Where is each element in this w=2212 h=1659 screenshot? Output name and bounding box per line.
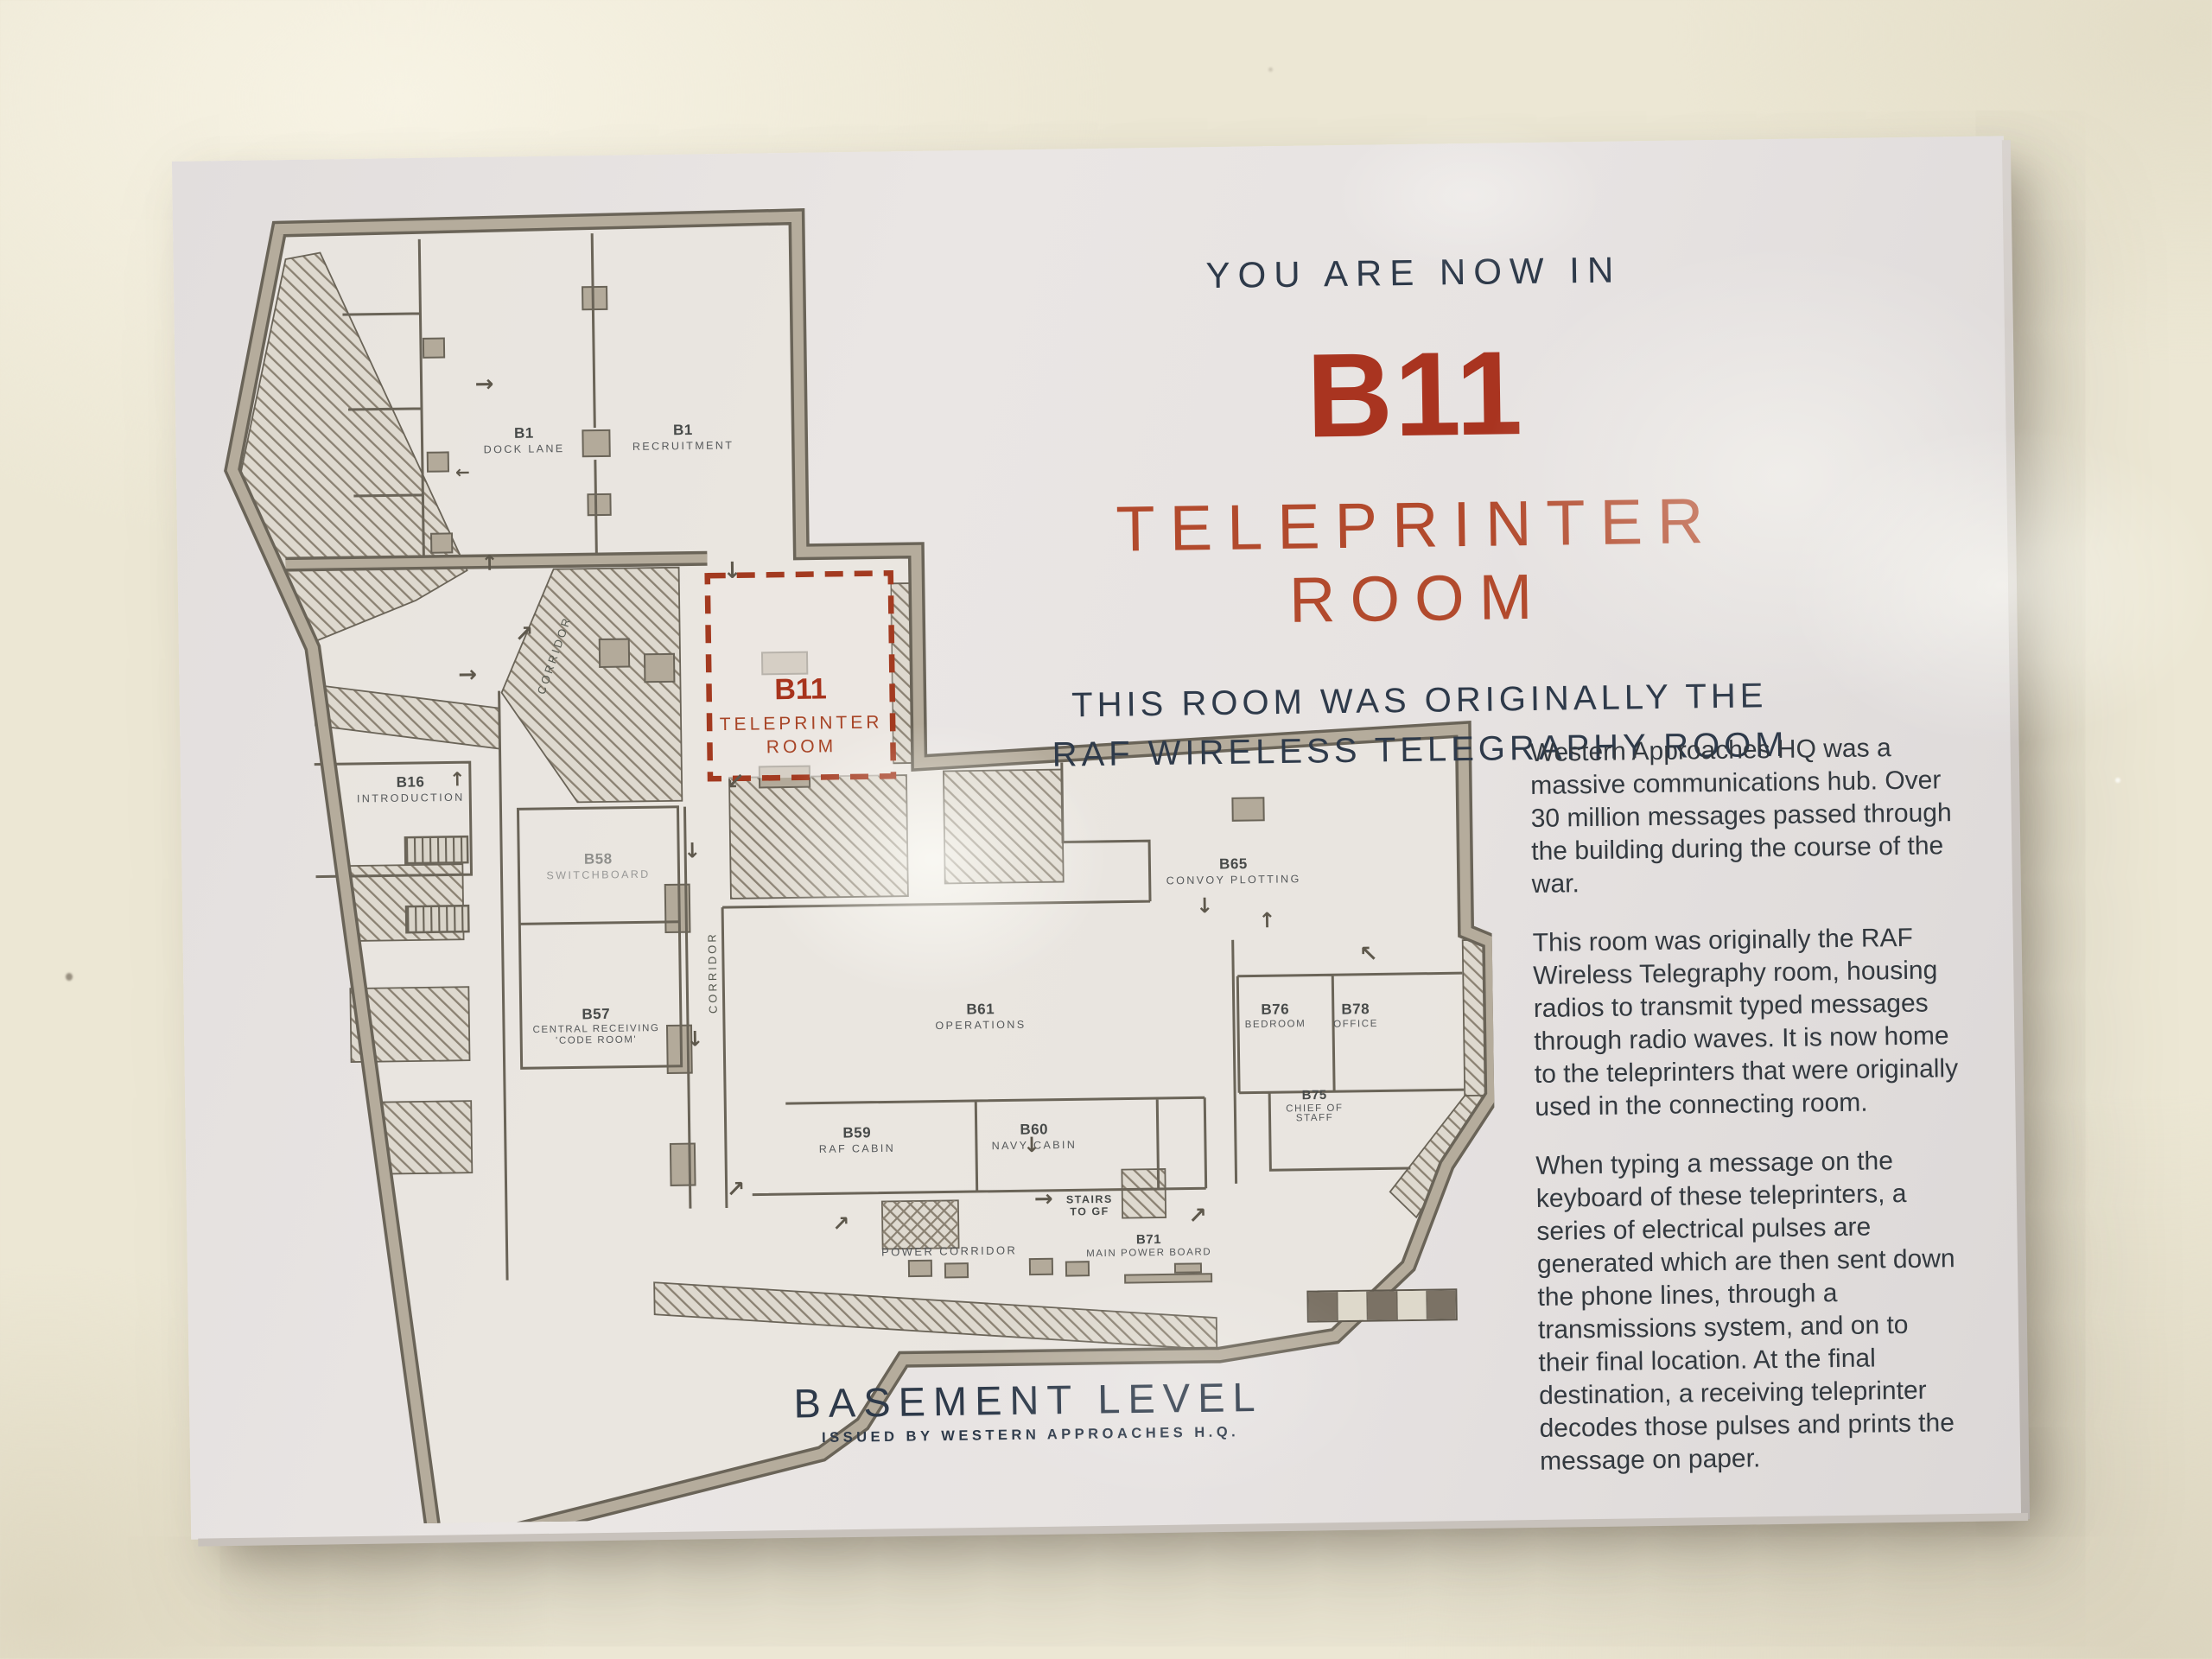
room-name: ROOM bbox=[709, 734, 893, 760]
door-arrow-icon: ↑ bbox=[449, 769, 466, 791]
door-arrow-icon: → bbox=[474, 372, 493, 397]
door-arrow-icon: ↗ bbox=[832, 1211, 849, 1236]
plan-title: BASEMENT LEVEL bbox=[793, 1373, 1263, 1427]
door-arrow-icon: ↗ bbox=[1188, 1203, 1207, 1229]
wall-speck bbox=[2115, 778, 2120, 783]
body-copy: Western Approaches HQ was a massive comm… bbox=[1529, 731, 1965, 1504]
floor-plan: B1 DOCK LANE B1 RECRUITMENT B16 INTRODUC… bbox=[203, 195, 1500, 1527]
paragraph: Western Approaches HQ was a massive comm… bbox=[1529, 731, 1957, 901]
room-code: B11 bbox=[709, 671, 893, 708]
door-arrow-icon: ← bbox=[455, 461, 470, 482]
paragraph: This room was originally the RAF Wireles… bbox=[1532, 921, 1960, 1124]
corridor-label: CORRIDOR bbox=[705, 931, 719, 1014]
room-name: TELEPRINTER bbox=[709, 710, 893, 736]
glare-highlight bbox=[1765, 410, 2212, 762]
door-arrow-icon: ↙ bbox=[726, 769, 745, 795]
sign-edge bbox=[2002, 140, 2030, 1519]
door-arrow-icon: ↑ bbox=[480, 551, 498, 575]
door-arrow-icon: ↗ bbox=[726, 1177, 745, 1203]
door-arrow-icon: ↓ bbox=[683, 838, 701, 862]
door-arrow-icon: → bbox=[458, 662, 477, 688]
floor-plan-drawing bbox=[203, 195, 1500, 1527]
scale-bar bbox=[1306, 1288, 1457, 1322]
door-arrow-icon: ↑ bbox=[1258, 908, 1275, 932]
wall-speck bbox=[1268, 67, 1273, 72]
door-arrow-icon: ↖ bbox=[1359, 941, 1378, 967]
door-arrow-icon: → bbox=[1034, 1186, 1053, 1212]
wall-speck bbox=[66, 973, 73, 981]
door-arrow-icon: ↓ bbox=[1196, 893, 1213, 918]
door-arrow-icon: ↓ bbox=[1023, 1133, 1040, 1157]
room-label-teleprinter: B11 TELEPRINTER ROOM bbox=[709, 671, 893, 760]
door-arrow-icon: ↓ bbox=[722, 558, 741, 584]
door-arrow-icon: ↗ bbox=[514, 621, 533, 647]
museum-sign-board: B1 DOCK LANE B1 RECRUITMENT B16 INTRODUC… bbox=[172, 136, 2023, 1539]
paragraph: When typing a message on the keyboard of… bbox=[1535, 1144, 1965, 1478]
door-arrow-icon: ↓ bbox=[686, 1027, 703, 1051]
